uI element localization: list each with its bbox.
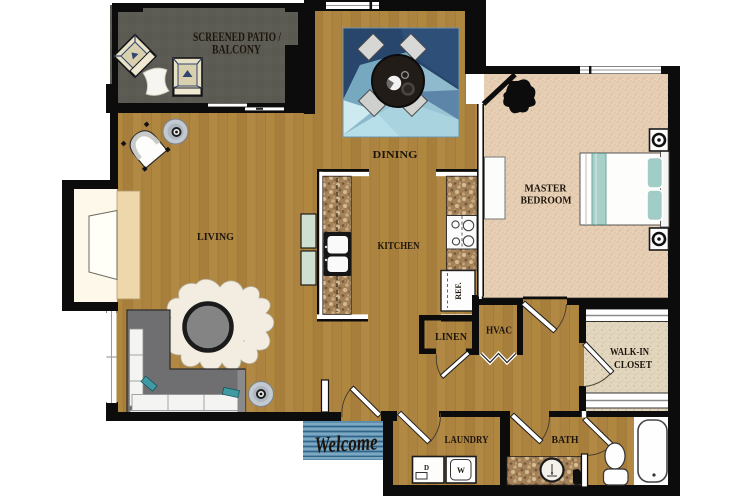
- svg-text:HVAC: HVAC: [486, 325, 512, 337]
- svg-text:REF.: REF.: [454, 282, 463, 299]
- svg-text:DINING: DINING: [373, 149, 418, 161]
- svg-text:CLOSET: CLOSET: [614, 359, 653, 371]
- svg-text:LIVING: LIVING: [197, 231, 234, 243]
- svg-text:KITCHEN: KITCHEN: [378, 241, 421, 252]
- svg-text:WALK-IN: WALK-IN: [610, 346, 649, 358]
- svg-text:BATH: BATH: [552, 435, 579, 446]
- svg-text:BALCONY: BALCONY: [212, 42, 261, 57]
- svg-text:MASTER: MASTER: [525, 184, 568, 195]
- svg-text:BEDROOM: BEDROOM: [521, 196, 573, 207]
- svg-text:W: W: [457, 466, 465, 475]
- svg-text:Welcome: Welcome: [314, 429, 378, 457]
- svg-text:D: D: [424, 464, 429, 472]
- svg-text:LAUNDRY: LAUNDRY: [445, 435, 490, 446]
- svg-text:LINEN: LINEN: [435, 331, 467, 343]
